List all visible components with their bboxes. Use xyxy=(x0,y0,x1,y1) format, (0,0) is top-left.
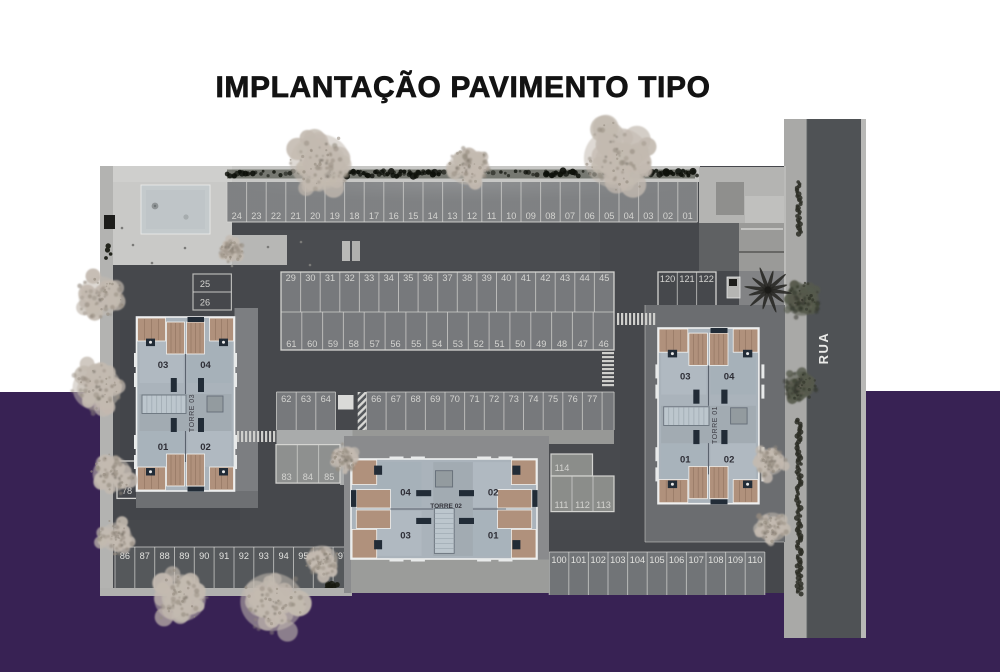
svg-text:40: 40 xyxy=(501,273,511,283)
svg-text:30: 30 xyxy=(305,273,315,283)
svg-text:37: 37 xyxy=(442,273,452,283)
svg-text:33: 33 xyxy=(364,273,374,283)
svg-text:39: 39 xyxy=(482,273,492,283)
svg-text:IMPLANTAÇÃO PAVIMENTO TIPO: IMPLANTAÇÃO PAVIMENTO TIPO xyxy=(215,70,710,104)
svg-text:57: 57 xyxy=(370,339,380,349)
svg-text:74: 74 xyxy=(528,394,538,404)
svg-text:120: 120 xyxy=(660,274,675,284)
svg-text:12: 12 xyxy=(467,211,477,221)
svg-text:62: 62 xyxy=(281,394,291,404)
svg-text:19: 19 xyxy=(330,211,340,221)
svg-text:22: 22 xyxy=(271,211,281,221)
svg-text:23: 23 xyxy=(251,211,261,221)
svg-text:60: 60 xyxy=(307,339,317,349)
svg-text:83: 83 xyxy=(281,472,291,482)
svg-text:76: 76 xyxy=(567,394,577,404)
svg-text:04: 04 xyxy=(400,488,411,499)
svg-text:01: 01 xyxy=(680,454,691,465)
svg-text:46: 46 xyxy=(598,339,608,349)
svg-text:64: 64 xyxy=(321,394,331,404)
svg-text:106: 106 xyxy=(669,555,684,565)
svg-text:02: 02 xyxy=(724,454,735,465)
svg-text:59: 59 xyxy=(328,339,338,349)
svg-text:104: 104 xyxy=(630,555,645,565)
svg-text:50: 50 xyxy=(515,339,525,349)
svg-text:10: 10 xyxy=(506,211,516,221)
svg-text:20: 20 xyxy=(310,211,320,221)
svg-text:52: 52 xyxy=(474,339,484,349)
svg-text:51: 51 xyxy=(494,339,504,349)
svg-text:84: 84 xyxy=(303,472,313,482)
svg-text:70: 70 xyxy=(450,394,460,404)
svg-text:69: 69 xyxy=(430,394,440,404)
svg-text:21: 21 xyxy=(290,211,300,221)
svg-text:101: 101 xyxy=(571,555,586,565)
svg-text:49: 49 xyxy=(536,339,546,349)
svg-text:113: 113 xyxy=(596,500,611,510)
svg-text:94: 94 xyxy=(278,551,288,561)
svg-text:85: 85 xyxy=(324,472,334,482)
svg-text:88: 88 xyxy=(159,551,169,561)
svg-text:47: 47 xyxy=(578,339,588,349)
svg-text:14: 14 xyxy=(428,211,438,221)
svg-text:89: 89 xyxy=(179,551,189,561)
svg-text:04: 04 xyxy=(724,372,735,383)
svg-text:108: 108 xyxy=(708,555,723,565)
svg-text:13: 13 xyxy=(447,211,457,221)
svg-text:36: 36 xyxy=(423,273,433,283)
svg-text:34: 34 xyxy=(384,273,394,283)
svg-text:04: 04 xyxy=(200,360,211,371)
svg-text:121: 121 xyxy=(679,274,694,284)
svg-text:05: 05 xyxy=(604,211,614,221)
svg-text:90: 90 xyxy=(199,551,209,561)
svg-text:67: 67 xyxy=(391,394,401,404)
svg-text:73: 73 xyxy=(509,394,519,404)
svg-text:75: 75 xyxy=(548,394,558,404)
svg-text:102: 102 xyxy=(591,555,606,565)
svg-text:01: 01 xyxy=(488,531,499,542)
svg-text:03: 03 xyxy=(400,531,411,542)
svg-text:68: 68 xyxy=(410,394,420,404)
svg-text:01: 01 xyxy=(682,211,692,221)
svg-text:77: 77 xyxy=(587,394,597,404)
svg-text:31: 31 xyxy=(325,273,335,283)
svg-text:56: 56 xyxy=(390,339,400,349)
svg-text:24: 24 xyxy=(232,211,242,221)
svg-text:09: 09 xyxy=(526,211,536,221)
svg-text:93: 93 xyxy=(259,551,269,561)
svg-text:71: 71 xyxy=(469,394,479,404)
svg-text:01: 01 xyxy=(158,442,169,453)
svg-text:72: 72 xyxy=(489,394,499,404)
svg-text:02: 02 xyxy=(200,442,211,453)
svg-text:61: 61 xyxy=(286,339,296,349)
svg-text:TORRE 01: TORRE 01 xyxy=(712,406,719,444)
svg-text:41: 41 xyxy=(521,273,531,283)
svg-text:112: 112 xyxy=(575,500,590,510)
svg-text:08: 08 xyxy=(545,211,555,221)
svg-text:29: 29 xyxy=(286,273,296,283)
svg-text:100: 100 xyxy=(551,555,566,565)
svg-text:54: 54 xyxy=(432,339,442,349)
svg-text:111: 111 xyxy=(555,500,569,510)
svg-text:TORRE 03: TORRE 03 xyxy=(189,394,196,432)
svg-text:114: 114 xyxy=(555,463,570,473)
svg-text:03: 03 xyxy=(158,360,169,371)
svg-text:25: 25 xyxy=(200,279,210,289)
svg-text:32: 32 xyxy=(344,273,354,283)
svg-text:55: 55 xyxy=(411,339,421,349)
svg-text:122: 122 xyxy=(699,274,714,284)
svg-text:02: 02 xyxy=(663,211,673,221)
svg-text:58: 58 xyxy=(349,339,359,349)
svg-text:43: 43 xyxy=(560,273,570,283)
svg-text:44: 44 xyxy=(579,273,589,283)
svg-text:07: 07 xyxy=(565,211,575,221)
svg-text:15: 15 xyxy=(408,211,418,221)
svg-text:109: 109 xyxy=(728,555,743,565)
svg-text:04: 04 xyxy=(624,211,634,221)
svg-text:105: 105 xyxy=(649,555,664,565)
svg-text:110: 110 xyxy=(748,555,763,565)
svg-text:17: 17 xyxy=(369,211,379,221)
svg-text:38: 38 xyxy=(462,273,472,283)
svg-text:91: 91 xyxy=(219,551,229,561)
svg-text:53: 53 xyxy=(453,339,463,349)
svg-text:16: 16 xyxy=(388,211,398,221)
svg-text:92: 92 xyxy=(239,551,249,561)
svg-text:03: 03 xyxy=(643,211,653,221)
svg-text:42: 42 xyxy=(540,273,550,283)
svg-text:63: 63 xyxy=(301,394,311,404)
svg-text:103: 103 xyxy=(610,555,625,565)
svg-text:35: 35 xyxy=(403,273,413,283)
svg-text:107: 107 xyxy=(689,555,704,565)
svg-text:03: 03 xyxy=(680,372,691,383)
svg-text:26: 26 xyxy=(200,298,210,308)
svg-text:11: 11 xyxy=(487,211,497,221)
svg-text:TORRE 02: TORRE 02 xyxy=(430,503,462,510)
svg-text:87: 87 xyxy=(140,551,150,561)
svg-text:18: 18 xyxy=(349,211,359,221)
svg-text:RUA: RUA xyxy=(816,332,831,365)
svg-text:48: 48 xyxy=(557,339,567,349)
svg-text:02: 02 xyxy=(488,488,499,499)
svg-text:06: 06 xyxy=(584,211,594,221)
svg-text:45: 45 xyxy=(599,273,609,283)
svg-text:66: 66 xyxy=(371,394,381,404)
